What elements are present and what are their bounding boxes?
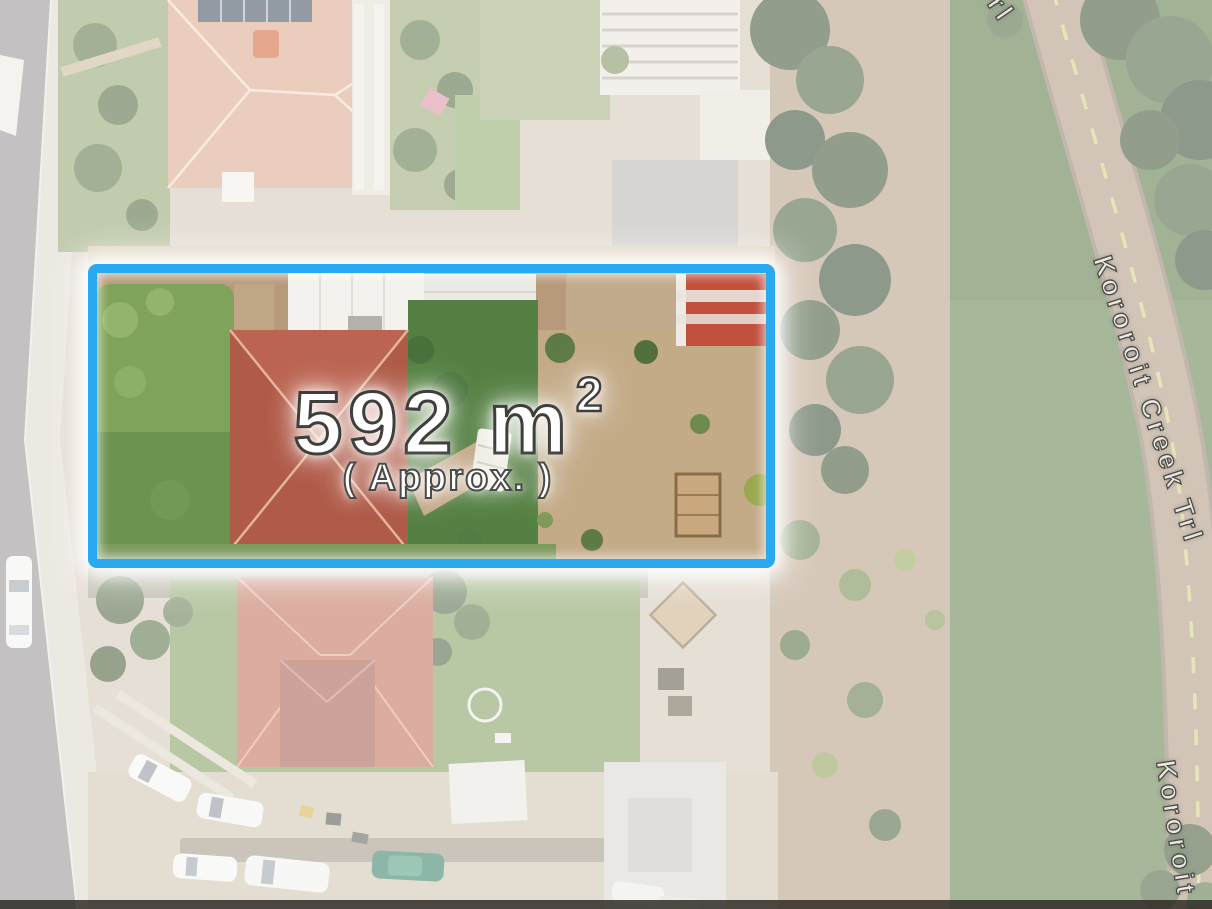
lawn-patch: [480, 0, 610, 120]
small-shed-white: [222, 172, 254, 202]
car-on-street: [6, 556, 32, 648]
bush: [780, 630, 810, 660]
bush: [601, 46, 629, 74]
bush: [925, 610, 945, 630]
solar-panels: [198, 0, 312, 22]
car-teal: [371, 850, 444, 882]
tree: [126, 199, 158, 231]
tree: [400, 20, 440, 60]
lot-area-approx-label: ( Approx. ): [118, 459, 778, 497]
tree: [796, 46, 864, 114]
tree: [1120, 110, 1180, 170]
yard-furniture: [495, 733, 511, 743]
compost-box: [658, 668, 684, 690]
tree: [454, 604, 490, 640]
tree: [826, 346, 894, 414]
bush: [839, 569, 871, 601]
lot-area-label: 592 m2: [118, 372, 778, 467]
tree: [773, 198, 837, 262]
chimney: [253, 30, 279, 58]
aerial-map: 592 m2 ( Approx. ) Kororoit Creek Trl rl…: [0, 0, 1212, 909]
driveway-strip: [374, 4, 384, 190]
bush: [869, 809, 901, 841]
tree: [819, 244, 891, 316]
tree: [130, 620, 170, 660]
white-building-inner: [628, 798, 692, 872]
tree: [812, 132, 888, 208]
tree: [74, 144, 122, 192]
tree: [821, 446, 869, 494]
tree: [780, 300, 840, 360]
driveway-strip: [354, 4, 364, 190]
gray-shed-roof: [612, 160, 738, 258]
car-white: [172, 853, 238, 882]
compost-box: [668, 696, 692, 716]
bush: [847, 682, 883, 718]
photo-edge-bar: [0, 900, 1212, 909]
paved-area: [700, 90, 770, 160]
tree: [163, 597, 193, 627]
yard-item-dark: [326, 812, 342, 825]
bottom-garage-roof: [280, 660, 375, 767]
bush: [812, 752, 838, 778]
tree: [90, 646, 126, 682]
bush: [894, 549, 916, 571]
front-fence-band: [88, 246, 775, 264]
lot-area-exponent: 2: [576, 369, 603, 422]
tree: [96, 576, 144, 624]
bush: [780, 520, 820, 560]
tree: [393, 128, 437, 172]
white-shed-roof: [448, 760, 527, 824]
tree: [98, 85, 138, 125]
tree: [789, 404, 841, 456]
